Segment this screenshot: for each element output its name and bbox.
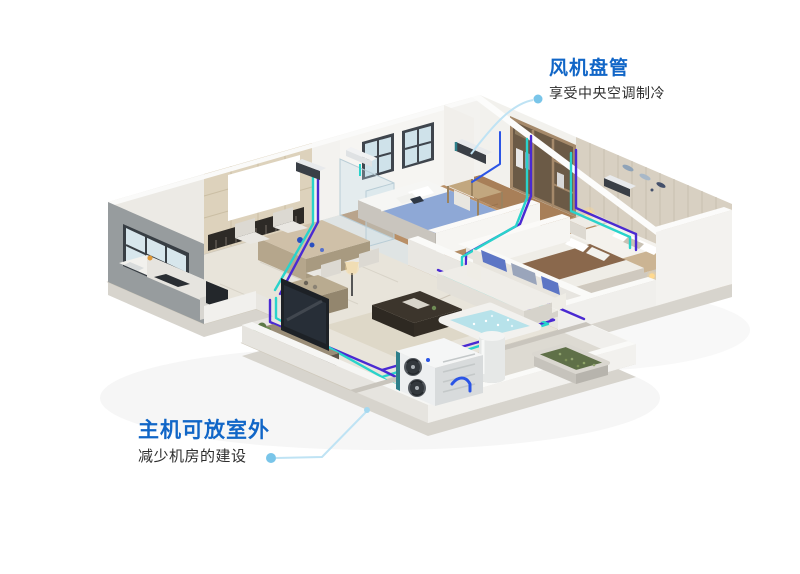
apartment-cutaway-illustration [0,0,800,574]
brand-dot [426,358,430,362]
fan [405,359,421,375]
blue-vase-2 [310,243,315,248]
callout-fan-coil-subtitle: 享受中央空调制冷 [549,85,665,101]
callout-fan-coil: 风机盘管 享受中央空调制冷 [549,58,665,101]
leader-dot-fancoil [534,95,543,104]
fan-2 [409,380,425,396]
hvac-apartment-infographic: 风机盘管 享受中央空调制冷 主机可放室外 减少机房的建设 [0,0,800,574]
counter-flowers [148,256,153,261]
callout-main-unit-title: 主机可放室外 [138,419,270,443]
blue-vase-3 [320,248,324,252]
callout-main-unit-subtitle: 减少机房的建设 [138,448,270,465]
callout-main-unit: 主机可放室外 减少机房的建设 [138,419,270,465]
callout-fan-coil-title: 风机盘管 [549,58,665,80]
leader-dot-outdoor-end [364,407,370,413]
